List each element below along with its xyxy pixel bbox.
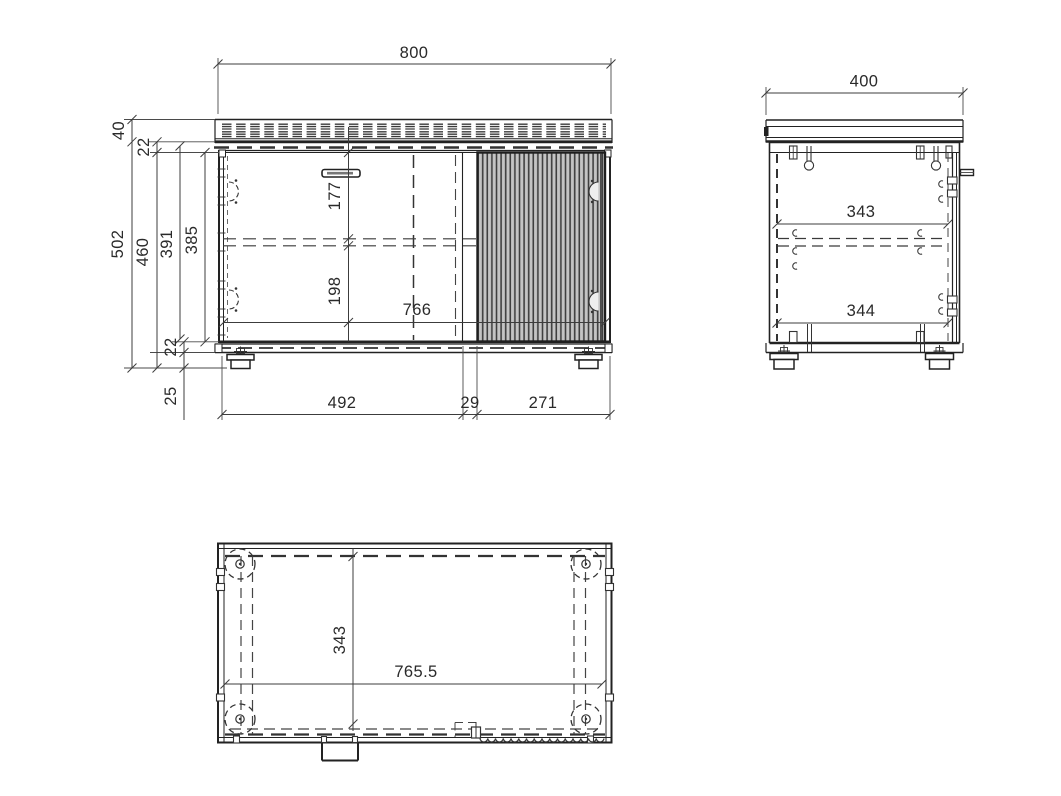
side-knob xyxy=(961,170,974,176)
dim-label-22-bottom: 22 xyxy=(162,337,180,356)
dim-label-25: 25 xyxy=(162,386,180,405)
side-hinge-block-2 xyxy=(948,190,958,197)
dim-label-765_5: 765.5 xyxy=(394,663,437,681)
bottom-view: 343 765.5 xyxy=(217,544,614,761)
dim-label-343-side: 343 xyxy=(847,203,876,221)
dim-label-385: 385 xyxy=(183,226,201,255)
dim-label-177: 177 xyxy=(326,182,344,211)
side-hinge-block-4 xyxy=(948,309,958,316)
dim-label-460: 460 xyxy=(134,238,152,267)
dim-label-22-top: 22 xyxy=(135,137,153,156)
dim-label-344-side: 344 xyxy=(847,302,876,320)
bottom-outline xyxy=(218,544,612,743)
dim-label-343-bottom: 343 xyxy=(331,626,349,655)
dim-label-800: 800 xyxy=(400,44,429,62)
dim-label-29: 29 xyxy=(460,394,479,412)
fluted-door xyxy=(478,153,606,342)
dim-label-502: 502 xyxy=(109,230,127,259)
dim-label-271: 271 xyxy=(529,394,558,412)
dim-label-400: 400 xyxy=(850,73,879,91)
door-handle xyxy=(322,170,360,178)
corner-joint-left xyxy=(219,150,226,157)
dim-label-40: 40 xyxy=(110,121,128,140)
dim-label-766: 766 xyxy=(403,301,432,319)
dim-label-198: 198 xyxy=(326,277,344,306)
cabinet-drawing-canvas: 800 xyxy=(0,0,1061,796)
side-hinge-block-3 xyxy=(948,296,958,303)
side-hinge-block-1 xyxy=(948,177,958,184)
dim-label-492: 492 xyxy=(328,394,357,412)
technical-drawing-page: 800 xyxy=(0,0,1061,796)
top-panel-left-notch xyxy=(764,127,769,136)
dim-label-391: 391 xyxy=(158,230,176,259)
